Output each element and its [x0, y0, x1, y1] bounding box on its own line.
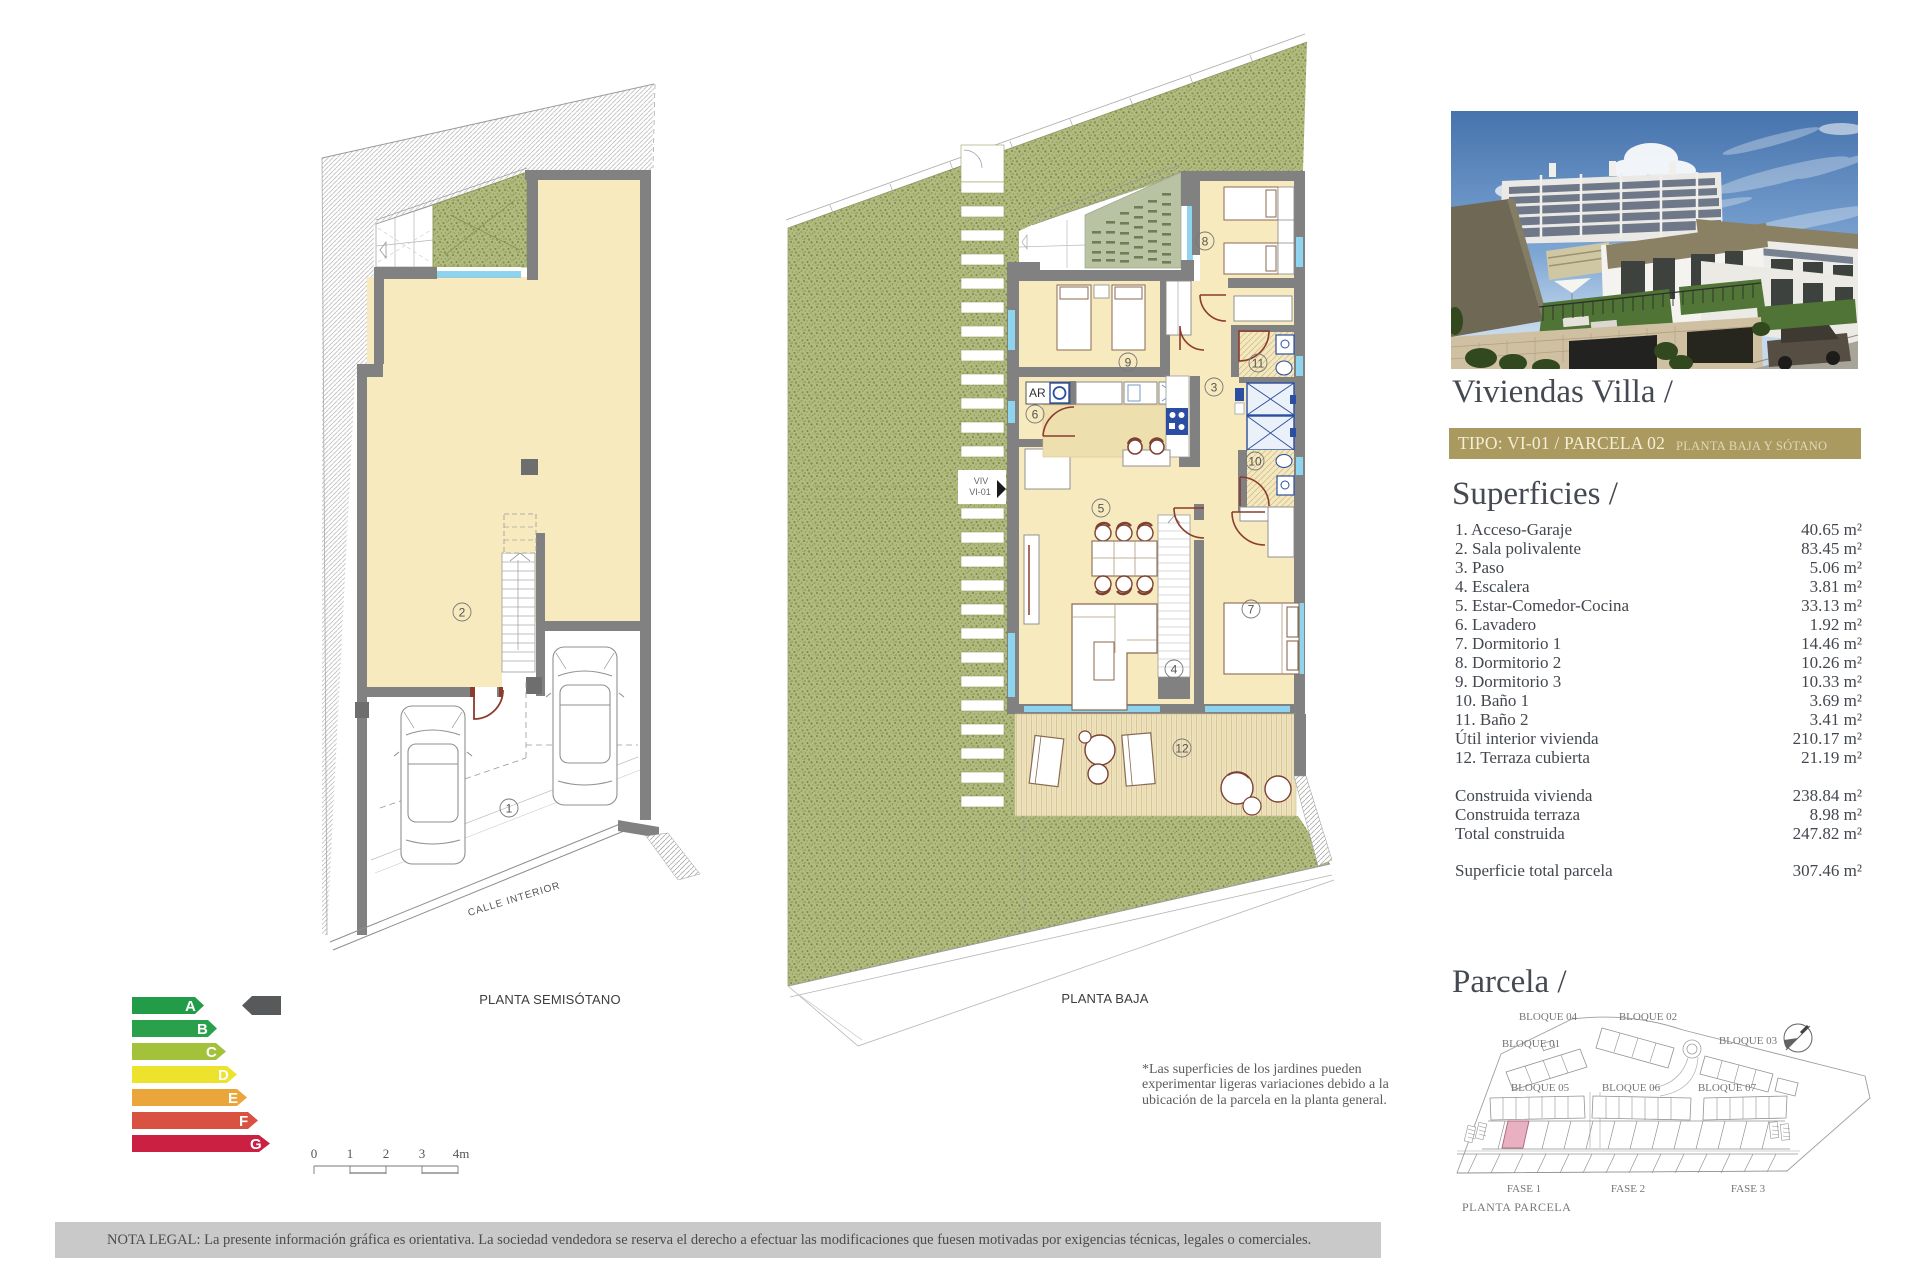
svg-text:AR: AR	[1029, 386, 1046, 400]
svg-text:6: 6	[1032, 408, 1039, 422]
svg-text:VIV: VIV	[974, 476, 989, 486]
svg-text:4: 4	[1171, 663, 1178, 677]
svg-text:10: 10	[1248, 455, 1262, 469]
svg-text:FASE 3: FASE 3	[1731, 1183, 1766, 1195]
svg-text:11: 11	[1252, 357, 1265, 371]
svg-text:FASE 2: FASE 2	[1611, 1183, 1645, 1195]
svg-text:B: B	[197, 1021, 208, 1038]
svg-text:BLOQUE 01: BLOQUE 01	[1502, 1038, 1560, 1050]
svg-text:2: 2	[383, 1146, 390, 1161]
svg-text:PLANTA PARCELA: PLANTA PARCELA	[1462, 1200, 1571, 1214]
svg-text:BLOQUE 05: BLOQUE 05	[1511, 1082, 1570, 1094]
svg-text:4m: 4m	[453, 1146, 470, 1161]
svg-text:9: 9	[1125, 356, 1132, 370]
svg-text:12: 12	[1175, 742, 1189, 756]
svg-text:1: 1	[347, 1146, 354, 1161]
svg-text:7: 7	[1248, 603, 1255, 617]
svg-text:BLOQUE 06: BLOQUE 06	[1602, 1082, 1661, 1094]
svg-text:A: A	[185, 998, 196, 1015]
svg-text:D: D	[218, 1067, 229, 1084]
svg-text:BLOQUE 03: BLOQUE 03	[1719, 1035, 1778, 1047]
svg-text:FASE 1: FASE 1	[1507, 1183, 1541, 1195]
svg-text:VI-01: VI-01	[969, 487, 991, 497]
svg-text:3: 3	[419, 1146, 426, 1161]
svg-text:2: 2	[459, 606, 466, 620]
svg-text:8: 8	[1202, 235, 1209, 249]
svg-text:G: G	[250, 1136, 262, 1153]
svg-text:0: 0	[311, 1146, 318, 1161]
svg-text:BLOQUE 07: BLOQUE 07	[1698, 1082, 1757, 1094]
svg-text:5: 5	[1098, 502, 1105, 516]
svg-text:E: E	[228, 1090, 238, 1107]
svg-text:F: F	[239, 1113, 248, 1130]
svg-text:1: 1	[506, 802, 513, 816]
svg-text:BLOQUE 04: BLOQUE 04	[1519, 1011, 1578, 1023]
svg-text:3: 3	[1211, 381, 1218, 395]
svg-text:C: C	[206, 1044, 217, 1061]
svg-text:CALLE INTERIOR: CALLE INTERIOR	[467, 880, 562, 919]
svg-text:BLOQUE 02: BLOQUE 02	[1619, 1011, 1677, 1023]
